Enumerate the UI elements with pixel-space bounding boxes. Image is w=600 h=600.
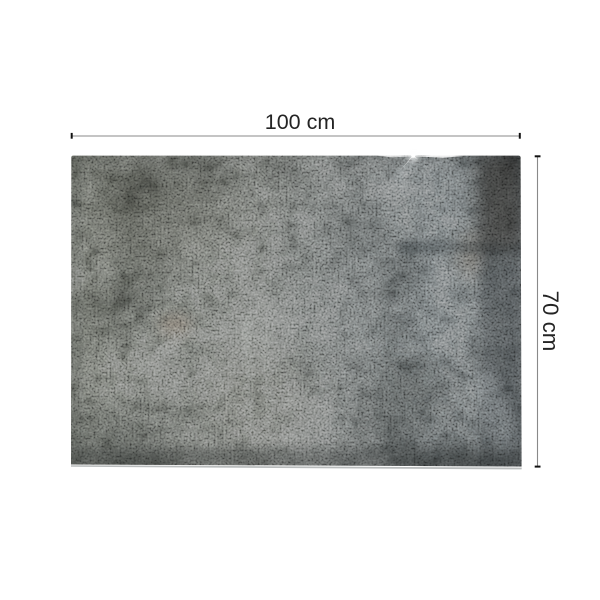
svg-text:100 cm: 100 cm (265, 110, 336, 134)
svg-text:70 cm: 70 cm (538, 291, 563, 352)
